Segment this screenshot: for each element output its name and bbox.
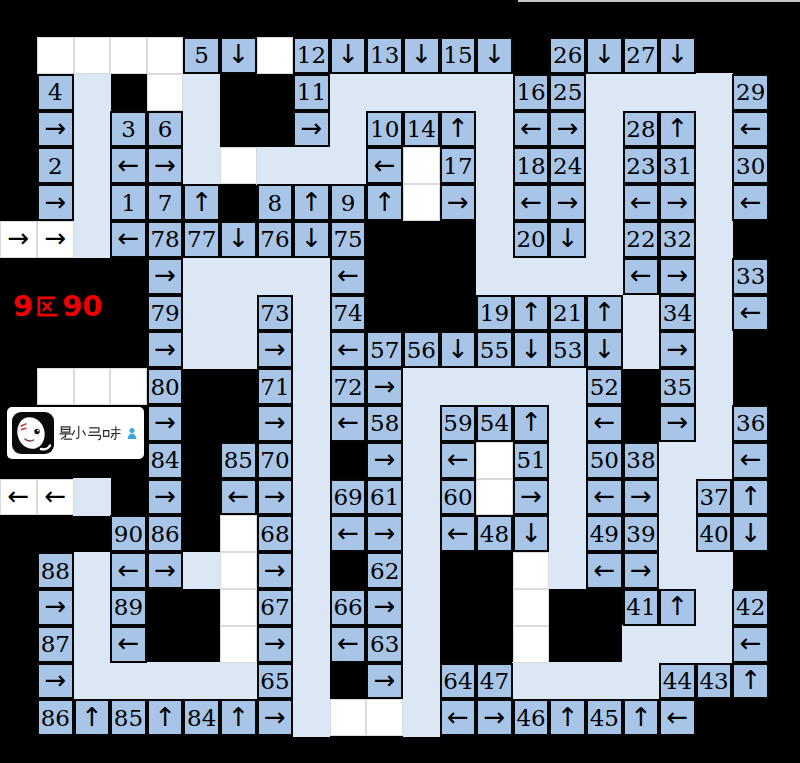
arrow-cell: ↑: [623, 699, 660, 736]
arrow-cell: ←: [586, 479, 623, 516]
path-cell: [695, 257, 732, 295]
numbered-cell: 73: [257, 295, 294, 332]
numbered-cell: 52: [586, 368, 623, 405]
path-cell: [695, 294, 732, 332]
path-cell: [293, 331, 330, 369]
path-cell: [293, 368, 330, 406]
numbered-cell: 56: [403, 331, 440, 368]
arrow-cell: ←: [440, 515, 477, 552]
empty-cell: [147, 74, 184, 111]
empty-cell: [330, 699, 367, 736]
numbered-cell: 17: [440, 147, 477, 184]
arrow-cell: ↑: [220, 699, 257, 736]
path-cell: [549, 515, 586, 553]
numbered-cell: 13: [366, 37, 403, 74]
path-cell: [549, 478, 586, 516]
path-cell: [695, 110, 732, 148]
path-cell: [73, 184, 110, 222]
numbered-cell: 41: [623, 589, 660, 626]
path-cell: [695, 405, 732, 443]
path-cell: [403, 405, 440, 443]
path-cell: [183, 552, 220, 590]
arrow-cell: ←: [732, 442, 769, 479]
empty-cell: [220, 147, 257, 184]
section-label: 9 90: [13, 289, 103, 323]
path-cell: [476, 184, 513, 222]
path-cell: [73, 662, 110, 700]
arrow-cell: ←: [330, 405, 367, 442]
numbered-cell: 23: [623, 147, 660, 184]
numbered-cell: 69: [330, 479, 367, 516]
arrow-cell: ←: [330, 331, 367, 368]
empty-cell: [220, 515, 257, 552]
path-cell: [293, 552, 330, 590]
numbered-cell: 86: [37, 699, 74, 736]
path-cell: [293, 625, 330, 663]
path-cell: [403, 625, 440, 663]
arrow-cell: →: [366, 663, 403, 700]
path-cell: [73, 478, 110, 516]
path-cell: [622, 662, 659, 700]
path-cell: [695, 73, 732, 111]
arrow-cell: ←: [220, 479, 257, 516]
empty-cell: [513, 589, 550, 626]
numbered-cell: 90: [110, 515, 147, 552]
empty-cell: [366, 699, 403, 736]
arrow-cell: →: [257, 479, 294, 516]
arrow-cell: ↑: [513, 405, 550, 442]
numbered-cell: 32: [659, 221, 696, 258]
numbered-cell: 67: [257, 589, 294, 626]
empty-cell: [403, 184, 440, 221]
numbered-cell: 18: [513, 147, 550, 184]
numbered-cell: 53: [549, 331, 586, 368]
arrow-cell: ↑: [183, 184, 220, 221]
entrance-arrow-cell: ←: [0, 479, 37, 516]
path-cell: [659, 625, 696, 663]
empty-cell: [513, 626, 550, 663]
arrow-cell: ↑: [293, 184, 330, 221]
path-cell: [622, 625, 659, 663]
path-cell: [659, 478, 696, 516]
path-cell: [476, 147, 513, 185]
path-cell: [403, 515, 440, 553]
numbered-cell: 44: [659, 663, 696, 700]
path-cell: [512, 257, 549, 295]
arrow-cell: ↑: [659, 589, 696, 626]
numbered-cell: 4: [37, 74, 74, 111]
numbered-cell: 27: [623, 37, 660, 74]
path-cell: [439, 368, 476, 406]
path-cell: [403, 73, 440, 111]
arrow-cell: ↑: [74, 699, 111, 736]
numbered-cell: 28: [623, 111, 660, 148]
arrow-cell: →: [549, 184, 586, 221]
empty-cell: [476, 479, 513, 516]
arrow-cell: →: [147, 147, 184, 184]
path-cell: [622, 73, 659, 111]
path-cell: [586, 147, 623, 185]
numbered-cell: 10: [366, 111, 403, 148]
arrow-cell: ↓: [330, 37, 367, 74]
numbered-cell: 48: [476, 515, 513, 552]
section-label-prefix: 9: [13, 289, 33, 323]
arrow-cell: ←: [330, 626, 367, 663]
path-cell: [695, 147, 732, 185]
arrow-cell: →: [623, 479, 660, 516]
entrance-arrow-cell: ←: [37, 479, 74, 516]
numbered-cell: 57: [366, 331, 403, 368]
maze-map: 5↓12↓13↓15↓26↓27↓411162529→36→1014↑←→28↑…: [0, 0, 800, 763]
path-cell: [586, 662, 623, 700]
arrow-cell: ↓: [732, 515, 769, 552]
path-cell: [329, 73, 366, 111]
arrow-cell: ↑: [549, 699, 586, 736]
path-cell: [73, 147, 110, 185]
arrow-cell: →: [257, 699, 294, 736]
path-cell: [73, 625, 110, 663]
path-cell: [695, 589, 732, 627]
path-cell: [586, 73, 623, 111]
numbered-cell: 12: [293, 37, 330, 74]
path-cell: [549, 368, 586, 406]
arrow-cell: →: [659, 405, 696, 442]
arrow-cell: ←: [623, 258, 660, 295]
arrow-cell: ↑: [732, 663, 769, 700]
path-cell: [183, 257, 220, 295]
numbered-cell: 3: [110, 111, 147, 148]
path-cell: [183, 73, 220, 111]
path-cell: [256, 257, 293, 295]
path-cell: [293, 589, 330, 627]
arrow-cell: ←: [110, 221, 147, 258]
arrow-cell: ←: [732, 295, 769, 332]
arrow-cell: ←: [440, 442, 477, 479]
empty-cell: [37, 37, 74, 74]
numbered-cell: 84: [183, 699, 220, 736]
path-cell: [183, 294, 220, 332]
numbered-cell: 49: [586, 515, 623, 552]
path-cell: [73, 110, 110, 148]
path-cell: [183, 331, 220, 369]
path-cell: [73, 73, 110, 111]
numbered-cell: 26: [549, 37, 586, 74]
path-cell: [293, 257, 330, 295]
path-cell: [476, 257, 513, 295]
numbered-cell: 40: [696, 515, 733, 552]
numbered-cell: 37: [696, 479, 733, 516]
path-cell: [329, 110, 366, 148]
arrow-cell: ←: [330, 258, 367, 295]
arrow-cell: →: [366, 368, 403, 405]
numbered-cell: 74: [330, 295, 367, 332]
path-cell: [293, 699, 330, 737]
path-cell: [183, 147, 220, 185]
path-cell: [403, 699, 440, 737]
numbered-cell: 47: [476, 663, 513, 700]
numbered-cell: 19: [476, 295, 513, 332]
numbered-cell: 6: [147, 111, 184, 148]
path-cell: [476, 110, 513, 148]
arrow-cell: ←: [586, 552, 623, 589]
path-cell: [403, 478, 440, 516]
numbered-cell: 30: [732, 147, 769, 184]
numbered-cell: 2: [37, 147, 74, 184]
numbered-cell: 21: [549, 295, 586, 332]
qu-character-glyph: [35, 294, 60, 319]
path-cell: [403, 589, 440, 627]
numbered-cell: 43: [696, 663, 733, 700]
empty-cell: [37, 368, 74, 405]
arrow-cell: →: [366, 515, 403, 552]
path-cell: [256, 147, 293, 185]
arrow-cell: ←: [623, 184, 660, 221]
top-edge-line: [518, 0, 800, 2]
arrow-cell: ↑: [440, 111, 477, 148]
numbered-cell: 75: [330, 221, 367, 258]
path-cell: [476, 368, 513, 406]
numbered-cell: 25: [549, 74, 586, 111]
numbered-cell: 65: [257, 663, 294, 700]
numbered-cell: 38: [623, 442, 660, 479]
empty-cell: [257, 37, 294, 74]
path-cell: [73, 589, 110, 627]
numbered-cell: 64: [440, 663, 477, 700]
numbered-cell: 31: [659, 147, 696, 184]
path-cell: [110, 662, 147, 700]
path-cell: [695, 184, 732, 222]
path-cell: [293, 294, 330, 332]
path-cell: [293, 405, 330, 443]
numbered-cell: 9: [330, 184, 367, 221]
arrow-cell: →: [147, 552, 184, 589]
maze-grid: 5↓12↓13↓15↓26↓27↓411162529→36→1014↑←→28↑…: [0, 0, 800, 763]
empty-cell: [74, 368, 111, 405]
path-cell: [586, 257, 623, 295]
arrow-cell: ↓: [513, 331, 550, 368]
arrow-cell: ↓: [220, 37, 257, 74]
numbered-cell: 36: [732, 405, 769, 442]
arrow-cell: →: [659, 258, 696, 295]
path-cell: [366, 73, 403, 111]
path-cell: [403, 368, 440, 406]
numbered-cell: 72: [330, 368, 367, 405]
arrow-cell: ↑: [586, 295, 623, 332]
path-cell: [220, 257, 257, 295]
numbered-cell: 45: [586, 699, 623, 736]
empty-cell: [220, 589, 257, 626]
path-cell: [586, 184, 623, 222]
arrow-cell: ↓: [403, 37, 440, 74]
numbered-cell: 42: [732, 589, 769, 626]
arrow-cell: →: [37, 184, 74, 221]
path-cell: [146, 662, 183, 700]
path-cell: [512, 662, 549, 700]
empty-cell: [147, 37, 184, 74]
watermark-logo: [12, 412, 54, 454]
path-cell: [293, 478, 330, 516]
numbered-cell: 62: [366, 552, 403, 589]
numbered-cell: 54: [476, 405, 513, 442]
numbered-cell: 63: [366, 626, 403, 663]
arrow-cell: ↑: [659, 111, 696, 148]
numbered-cell: 70: [257, 442, 294, 479]
arrow-cell: ↓: [440, 331, 477, 368]
path-cell: [659, 441, 696, 479]
path-cell: [659, 515, 696, 553]
arrow-cell: →: [623, 552, 660, 589]
entrance-arrow-cell: →: [37, 221, 74, 258]
arrow-cell: ↑: [147, 699, 184, 736]
arrow-cell: ←: [586, 405, 623, 442]
arrow-cell: →: [147, 405, 184, 442]
path-cell: [403, 441, 440, 479]
arrow-cell: →: [440, 184, 477, 221]
empty-cell: [476, 442, 513, 479]
path-cell: [403, 552, 440, 590]
arrow-cell: ←: [513, 184, 550, 221]
arrow-cell: ↑: [513, 295, 550, 332]
path-cell: [659, 73, 696, 111]
path-cell: [512, 368, 549, 406]
numbered-cell: 89: [110, 589, 147, 626]
empty-cell: [74, 37, 111, 74]
path-cell: [549, 662, 586, 700]
path-cell: [695, 552, 732, 590]
numbered-cell: 51: [513, 442, 550, 479]
path-cell: [220, 331, 257, 369]
arrow-cell: →: [37, 589, 74, 626]
numbered-cell: 87: [37, 626, 74, 663]
numbered-cell: 24: [549, 147, 586, 184]
numbered-cell: 16: [513, 74, 550, 111]
arrow-cell: ↓: [476, 37, 513, 74]
numbered-cell: 85: [110, 699, 147, 736]
arrow-cell: ↑: [732, 479, 769, 516]
path-cell: [403, 662, 440, 700]
numbered-cell: 80: [147, 368, 184, 405]
path-cell: [549, 552, 586, 590]
arrow-cell: ←: [513, 111, 550, 148]
numbered-cell: 14: [403, 111, 440, 148]
path-cell: [220, 662, 257, 700]
arrow-cell: ←: [732, 626, 769, 663]
arrow-cell: →: [659, 331, 696, 368]
section-label-suffix: 90: [62, 289, 102, 323]
path-cell: [695, 625, 732, 663]
arrow-cell: →: [257, 405, 294, 442]
arrow-cell: ↑: [366, 184, 403, 221]
numbered-cell: 20: [513, 221, 550, 258]
numbered-cell: 8: [257, 184, 294, 221]
arrow-cell: ←: [440, 699, 477, 736]
numbered-cell: 77: [183, 221, 220, 258]
path-cell: [476, 73, 513, 111]
numbered-cell: 59: [440, 405, 477, 442]
empty-cell: [220, 552, 257, 589]
path-cell: [73, 552, 110, 590]
entrance-arrow-cell: →: [0, 221, 37, 258]
numbered-cell: 76: [257, 221, 294, 258]
numbered-cell: 15: [440, 37, 477, 74]
numbered-cell: 66: [330, 589, 367, 626]
path-cell: [659, 552, 696, 590]
arrow-cell: →: [257, 552, 294, 589]
arrow-cell: →: [257, 331, 294, 368]
numbered-cell: 1: [110, 184, 147, 221]
numbered-cell: 39: [623, 515, 660, 552]
path-cell: [586, 221, 623, 259]
numbered-cell: 84: [147, 442, 184, 479]
numbered-cell: 55: [476, 331, 513, 368]
person-icon: [126, 427, 138, 440]
path-cell: [293, 662, 330, 700]
arrow-cell: →: [37, 111, 74, 148]
arrow-cell: ←: [732, 184, 769, 221]
arrow-cell: →: [549, 111, 586, 148]
arrow-cell: ←: [659, 699, 696, 736]
watermark-badge: 是小马呀: [7, 407, 144, 459]
arrow-cell: ↓: [293, 221, 330, 258]
path-cell: [549, 405, 586, 443]
arrow-cell: ←: [110, 552, 147, 589]
path-cell: [293, 441, 330, 479]
path-cell: [439, 73, 476, 111]
arrow-cell: ↓: [513, 515, 550, 552]
numbered-cell: 33: [732, 258, 769, 295]
empty-cell: [513, 552, 550, 589]
path-cell: [695, 441, 732, 479]
path-cell: [695, 331, 732, 369]
numbered-cell: 5: [183, 37, 220, 74]
arrow-cell: →: [293, 111, 330, 148]
path-cell: [695, 368, 732, 406]
numbered-cell: 88: [37, 552, 74, 589]
numbered-cell: 86: [147, 515, 184, 552]
numbered-cell: 46: [513, 699, 550, 736]
empty-cell: [110, 37, 147, 74]
numbered-cell: 35: [659, 368, 696, 405]
path-cell: [183, 662, 220, 700]
arrow-cell: ↓: [549, 221, 586, 258]
numbered-cell: 71: [257, 368, 294, 405]
path-cell: [329, 147, 366, 185]
arrow-cell: →: [147, 331, 184, 368]
path-cell: [622, 331, 659, 369]
empty-cell: [403, 147, 440, 184]
arrow-cell: ←: [330, 515, 367, 552]
arrow-cell: ↓: [659, 37, 696, 74]
path-cell: [293, 515, 330, 553]
arrow-cell: →: [659, 184, 696, 221]
watermark-text-glyphs: [59, 425, 121, 441]
arrow-cell: →: [147, 258, 184, 295]
path-cell: [622, 294, 659, 332]
numbered-cell: 78: [147, 221, 184, 258]
arrow-cell: →: [476, 699, 513, 736]
numbered-cell: 7: [147, 184, 184, 221]
path-cell: [220, 294, 257, 332]
path-cell: [549, 441, 586, 479]
numbered-cell: 34: [659, 295, 696, 332]
numbered-cell: 29: [732, 74, 769, 111]
arrow-cell: →: [513, 479, 550, 516]
numbered-cell: 60: [440, 479, 477, 516]
numbered-cell: 50: [586, 442, 623, 479]
arrow-cell: →: [37, 663, 74, 700]
numbered-cell: 22: [623, 221, 660, 258]
path-cell: [586, 110, 623, 148]
